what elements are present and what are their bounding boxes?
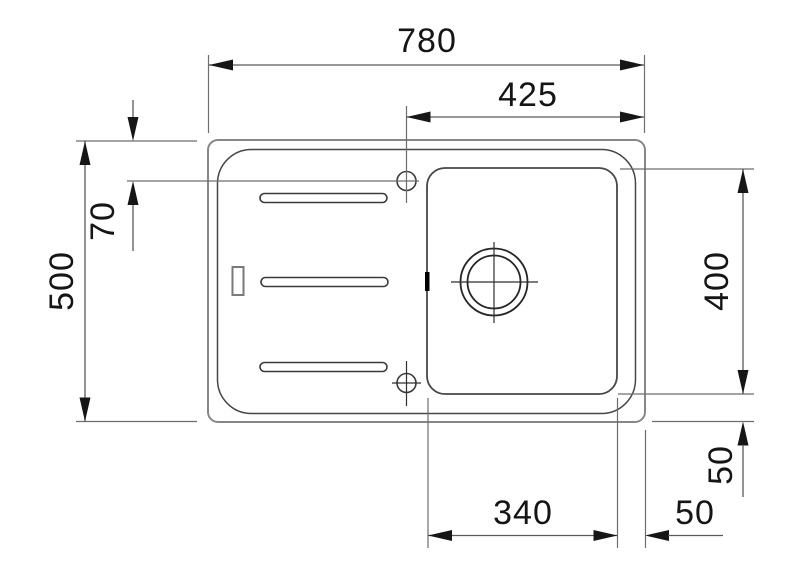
dimension-faucet-from-top-edge: 70 [84,100,139,251]
sink-body [208,140,645,422]
arrowhead-right-icon [620,60,644,71]
arrowhead-left-icon [645,530,669,541]
dim-label-340: 340 [493,494,553,532]
arrowhead-left-icon [209,60,233,71]
arrowhead-up-icon [738,422,749,446]
dim-label-50-horizontal: 50 [675,494,715,532]
dim-label-400: 400 [698,251,736,311]
dimension-overall-width: 780 [209,22,644,71]
arrowhead-up-icon [128,181,139,205]
dim-label-425: 425 [498,76,558,114]
dimension-bowl-width: 340 [428,494,618,541]
arrowhead-left-icon [428,530,452,541]
dimension-faucet-to-right-edge: 425 [407,76,645,123]
drain [451,242,538,323]
arrowhead-down-icon [738,370,749,394]
dim-label-70: 70 [84,201,122,241]
bowl-outline [427,168,617,394]
sink-dimension-drawing: 780 425 500 70 400 50 340 [0,0,800,562]
left-edge-notch [233,267,244,295]
drainer-groove-middle [261,278,388,287]
arrowhead-down-icon [80,398,91,422]
drainer-groove-top [260,194,387,203]
arrowhead-right-icon [594,530,618,541]
dimension-bowl-depth: 400 [698,169,749,394]
arrowhead-up-icon [738,169,749,193]
faucet-hole-bottom [392,361,421,406]
overflow-marker [425,272,430,291]
extension-lines [76,55,754,548]
arrowhead-down-icon [128,117,139,141]
arrowhead-left-icon [407,112,431,123]
arrowhead-up-icon [80,141,91,165]
dim-label-50-vertical: 50 [702,445,740,485]
dimension-bowl-to-right-edge: 50 [645,494,723,541]
technical-drawing-canvas: 780 425 500 70 400 50 340 [0,0,800,562]
arrowhead-right-icon [620,112,644,123]
dim-label-500: 500 [43,251,81,311]
dimension-bowl-to-bottom-edge: 50 [702,422,749,498]
dim-label-780: 780 [397,22,457,60]
dimension-overall-depth: 500 [43,141,91,422]
drainer-groove-bottom [260,363,387,372]
